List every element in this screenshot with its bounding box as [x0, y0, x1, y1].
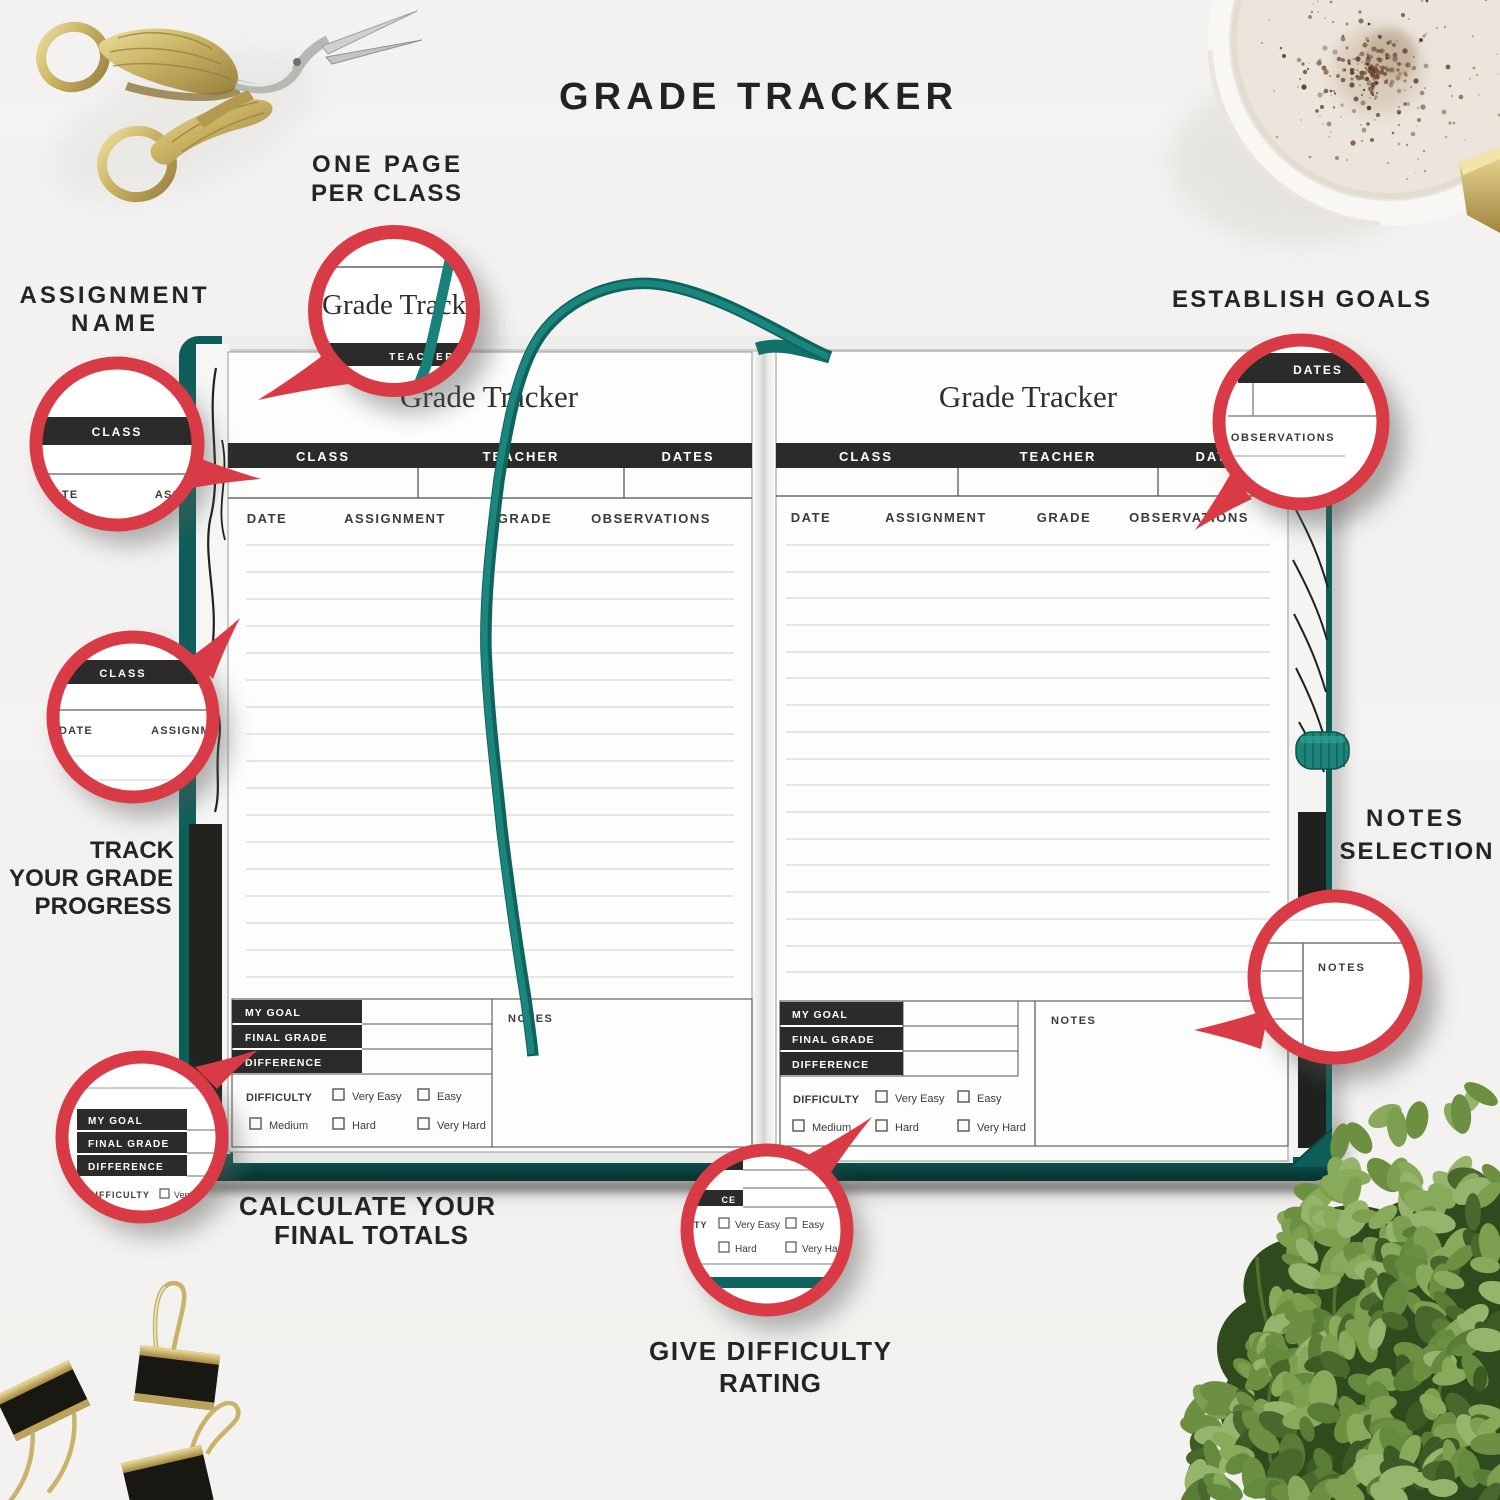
- svg-text:TRACK: TRACK: [90, 837, 175, 864]
- svg-text:Grade Tracker: Grade Tracker: [939, 379, 1118, 414]
- svg-text:CLASS: CLASS: [296, 449, 350, 464]
- svg-text:DATE: DATE: [247, 511, 287, 526]
- svg-text:Very Hard: Very Hard: [437, 1120, 486, 1132]
- svg-text:CALCULATE YOUR: CALCULATE YOUR: [239, 1191, 495, 1221]
- svg-text:Very Easy: Very Easy: [352, 1091, 402, 1103]
- svg-text:TEACHER: TEACHER: [1020, 449, 1097, 464]
- svg-text:CLASS: CLASS: [92, 425, 143, 439]
- svg-text:DIFFERENCE: DIFFERENCE: [792, 1059, 869, 1071]
- svg-text:OBSERVATIONS: OBSERVATIONS: [591, 511, 711, 526]
- svg-text:GRADE: GRADE: [1037, 510, 1091, 525]
- svg-text:NOTES: NOTES: [1051, 1015, 1096, 1027]
- svg-text:Easy: Easy: [802, 1220, 824, 1231]
- svg-text:FINAL GRADE: FINAL GRADE: [88, 1139, 169, 1150]
- svg-text:YOUR GRADE: YOUR GRADE: [9, 865, 173, 892]
- svg-text:PROGRESS: PROGRESS: [35, 893, 172, 920]
- svg-text:FINAL GRADE: FINAL GRADE: [792, 1034, 875, 1046]
- svg-text:GRADE: GRADE: [498, 511, 552, 526]
- svg-text:MY GOAL: MY GOAL: [792, 1009, 848, 1021]
- svg-text:DATES: DATES: [661, 449, 714, 464]
- svg-text:CLASS: CLASS: [99, 668, 146, 680]
- svg-text:CE: CE: [721, 1195, 736, 1205]
- svg-text:ASSIGNMENT: ASSIGNMENT: [344, 511, 446, 526]
- svg-text:Hard: Hard: [895, 1122, 919, 1134]
- svg-text:RATING: RATING: [719, 1368, 821, 1398]
- svg-text:Very Easy: Very Easy: [895, 1093, 945, 1105]
- svg-text:OBSERVATIONS: OBSERVATIONS: [1129, 510, 1249, 525]
- svg-text:Very Easy: Very Easy: [735, 1220, 780, 1231]
- svg-text:ESTABLISH GOALS: ESTABLISH GOALS: [1172, 286, 1430, 313]
- svg-text:DATE: DATE: [59, 725, 93, 737]
- svg-text:NOTES: NOTES: [1366, 805, 1462, 832]
- svg-text:OBSERVATIONS: OBSERVATIONS: [1231, 432, 1335, 444]
- svg-text:DIFFERENCE: DIFFERENCE: [88, 1162, 164, 1173]
- svg-text:FINAL TOTALS: FINAL TOTALS: [274, 1220, 468, 1250]
- svg-text:MY GOAL: MY GOAL: [245, 1007, 301, 1019]
- svg-text:Medium: Medium: [812, 1122, 851, 1134]
- svg-text:Hard: Hard: [735, 1244, 757, 1255]
- svg-text:FINAL GRADE: FINAL GRADE: [245, 1032, 328, 1044]
- svg-text:MY GOAL: MY GOAL: [88, 1116, 143, 1127]
- svg-text:Easy: Easy: [437, 1091, 462, 1103]
- svg-text:NOTES: NOTES: [1318, 962, 1366, 974]
- svg-text:TY: TY: [694, 1220, 708, 1230]
- svg-text:Easy: Easy: [977, 1093, 1002, 1105]
- svg-text:ASSIGNM: ASSIGNM: [151, 725, 211, 737]
- svg-text:PER CLASS: PER CLASS: [311, 180, 461, 207]
- svg-text:Very Hard: Very Hard: [977, 1122, 1026, 1134]
- svg-text:CLASS: CLASS: [839, 449, 893, 464]
- svg-text:DATE: DATE: [791, 510, 831, 525]
- svg-text:TEACHER: TEACHER: [483, 449, 560, 464]
- svg-text:DIFFERENCE: DIFFERENCE: [245, 1057, 322, 1069]
- svg-text:DIFFICULTY: DIFFICULTY: [793, 1094, 860, 1106]
- svg-text:SELECTION: SELECTION: [1340, 838, 1493, 865]
- svg-text:ONE PAGE: ONE PAGE: [312, 151, 460, 178]
- svg-text:Hard: Hard: [352, 1120, 376, 1132]
- svg-text:ASSIGNMENT: ASSIGNMENT: [885, 510, 987, 525]
- svg-text:ASSIGNMENT: ASSIGNMENT: [20, 282, 207, 309]
- svg-text:DATES: DATES: [1293, 363, 1343, 377]
- svg-text:DIFFICULTY: DIFFICULTY: [246, 1092, 313, 1104]
- svg-text:Medium: Medium: [269, 1120, 308, 1132]
